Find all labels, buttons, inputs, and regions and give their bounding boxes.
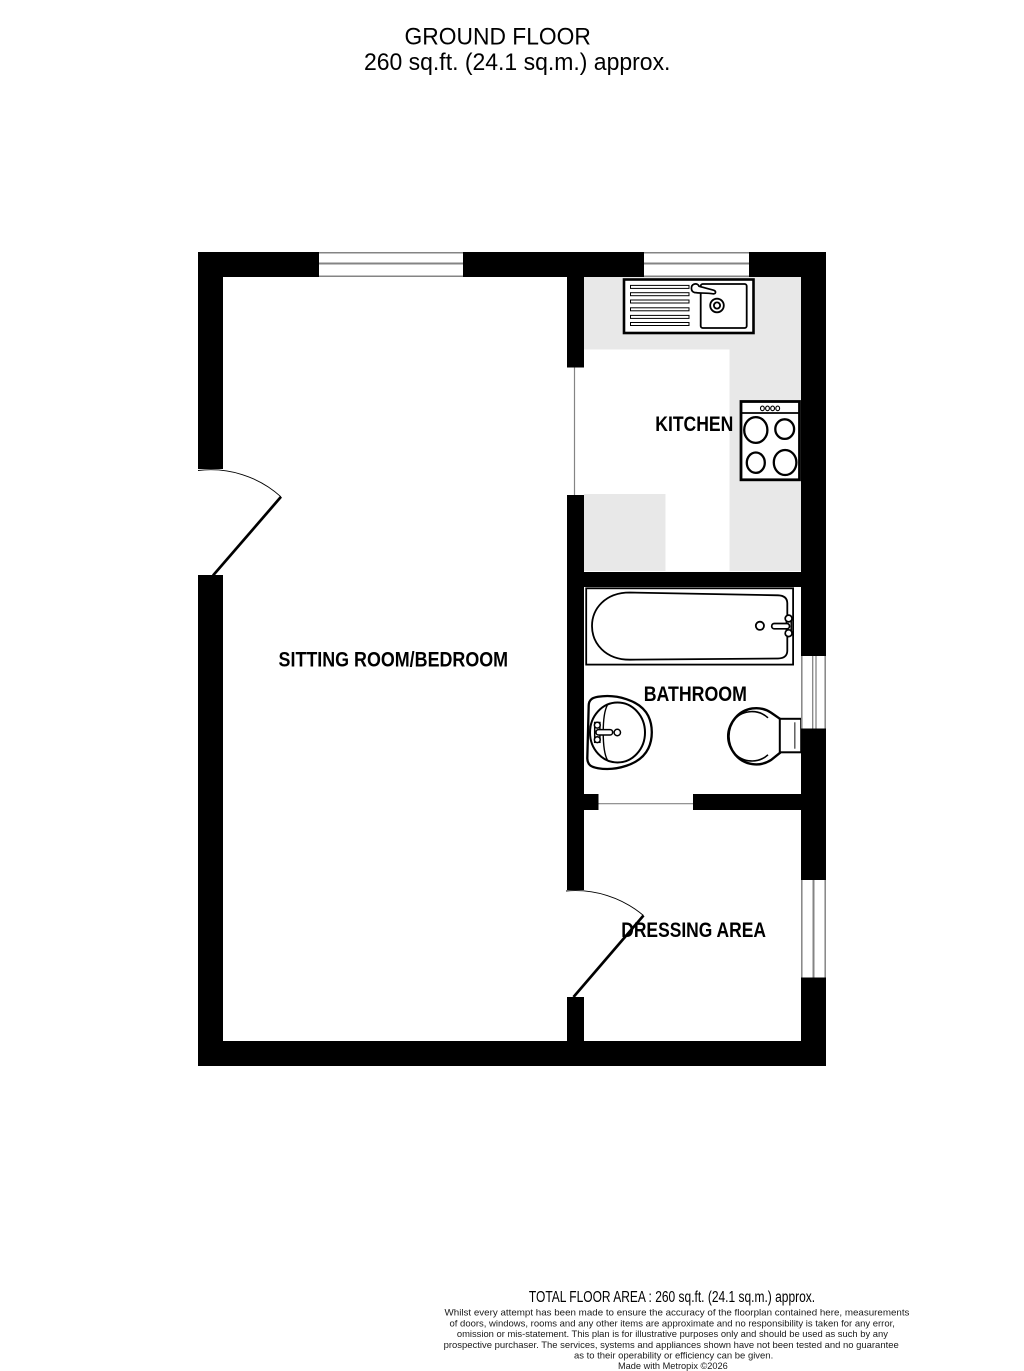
svg-text:Made with Metropix ©2026: Made with Metropix ©2026 (618, 1361, 728, 1371)
svg-text:DRESSING AREA: DRESSING AREA (621, 918, 766, 942)
svg-text:omission or mis-statement. Thi: omission or mis-statement. This plan is … (457, 1329, 889, 1339)
svg-text:Whilst every attempt has been: Whilst every attempt has been made to en… (445, 1308, 910, 1318)
svg-text:BATHROOM: BATHROOM (644, 682, 747, 706)
svg-text:as to their operability or eff: as to their operability or efficiency ca… (574, 1351, 773, 1361)
svg-text:of doors, windows, rooms and a: of doors, windows, rooms and any other i… (450, 1319, 895, 1329)
svg-text:260 sq.ft. (24.1 sq.m.) approx: 260 sq.ft. (24.1 sq.m.) approx. (364, 49, 671, 76)
svg-text:GROUND FLOOR: GROUND FLOOR (405, 23, 591, 50)
svg-text:KITCHEN: KITCHEN (655, 412, 733, 436)
svg-text:prospective purchaser. The ser: prospective purchaser. The services, sys… (444, 1340, 899, 1350)
svg-text:TOTAL FLOOR AREA : 260 sq.ft.: TOTAL FLOOR AREA : 260 sq.ft. (24.1 sq.m… (529, 1289, 815, 1306)
svg-text:SITTING ROOM/BEDROOM: SITTING ROOM/BEDROOM (279, 648, 509, 672)
